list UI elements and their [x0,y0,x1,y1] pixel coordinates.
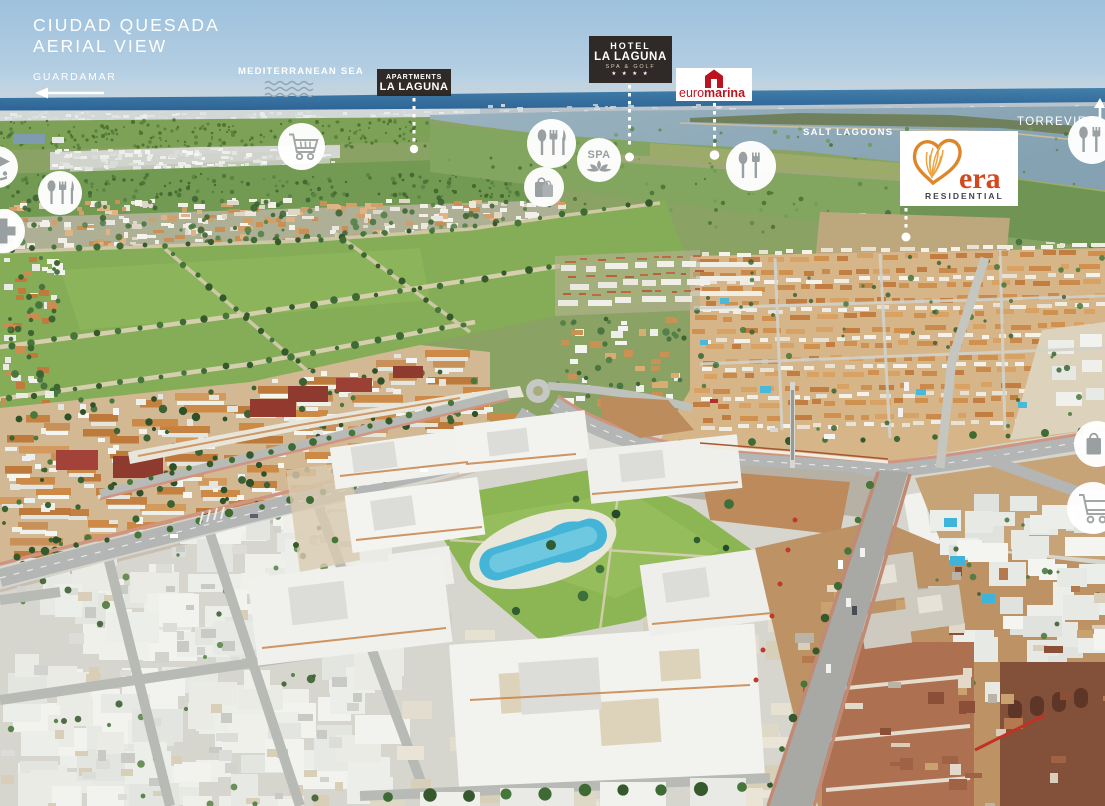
svg-text:SPA: SPA [587,149,610,161]
svg-text:euromarina: euromarina [679,86,746,100]
svg-text:RESIDENTIAL: RESIDENTIAL [925,191,1004,201]
